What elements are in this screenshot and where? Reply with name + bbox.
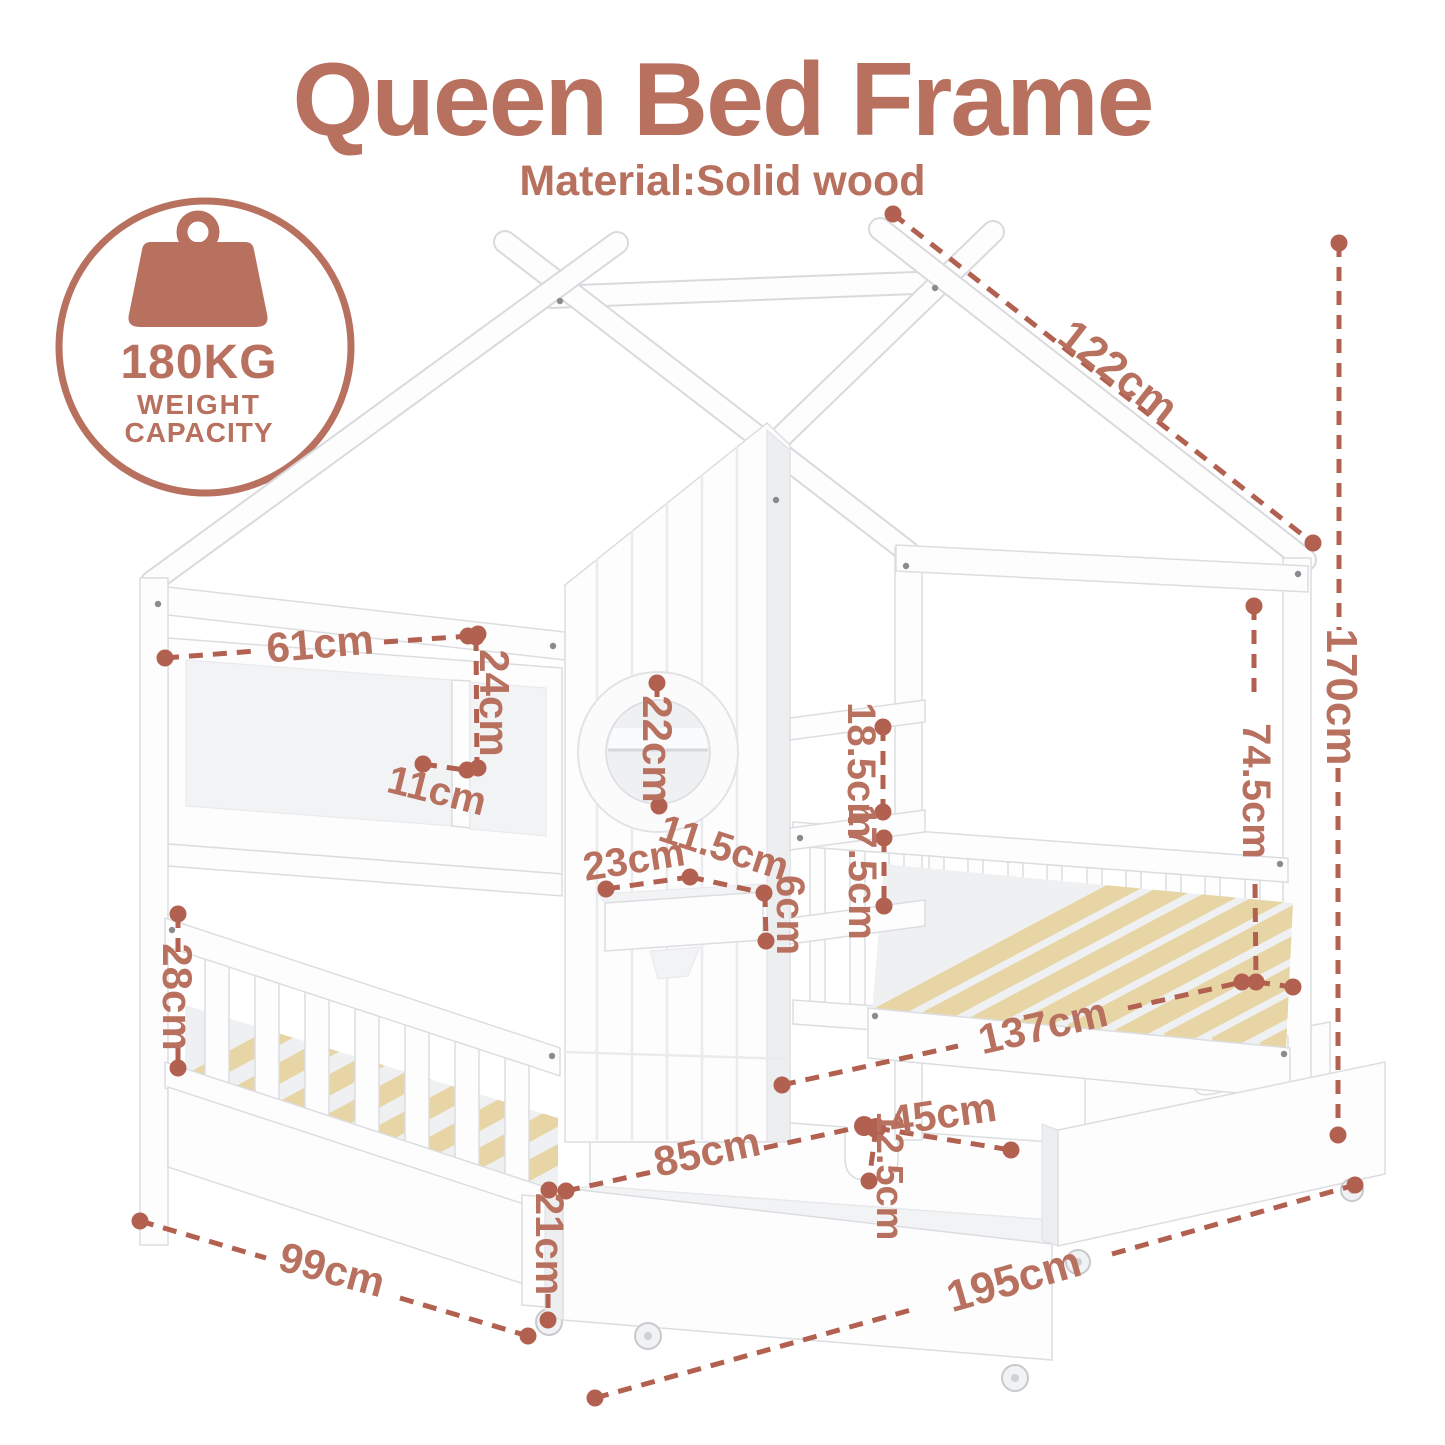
dim-drawer-handle-notch: 12.5cm bbox=[870, 1112, 908, 1241]
dim-window-diameter: 22cm bbox=[636, 695, 678, 802]
dim-guard-rail-height: 28cm bbox=[156, 943, 198, 1050]
bed-illustration bbox=[0, 0, 1445, 1445]
left-post bbox=[140, 578, 168, 1245]
product-dimension-diagram: Queen Bed Frame Material:Solid wood KG 1… bbox=[0, 0, 1445, 1445]
dim-headboard-shelf-height: 24cm bbox=[473, 649, 515, 756]
dim-overall-height: 170cm bbox=[1319, 628, 1363, 765]
foot-tie-beam bbox=[896, 545, 1308, 592]
dim-drawer-height: 21cm bbox=[529, 1193, 569, 1295]
dim-wall-shelf-height: 6cm bbox=[770, 875, 810, 955]
dim-bookshelf-gap-lower: 17.5cm bbox=[842, 804, 882, 940]
dim-headboard-shelf-width: 61cm bbox=[265, 618, 376, 669]
dim-canopy-post-height: 74.5cm bbox=[1236, 723, 1276, 859]
